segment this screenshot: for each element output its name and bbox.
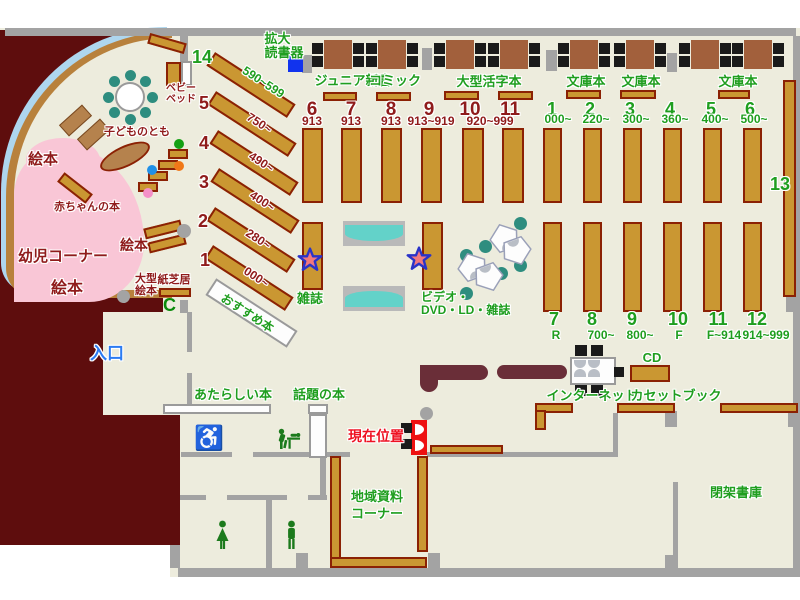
bookshelf xyxy=(462,128,484,203)
kids-round-table xyxy=(115,82,145,112)
study-table xyxy=(570,40,598,69)
bookshelf xyxy=(535,410,546,430)
chair xyxy=(732,43,743,54)
shelf-no-14: 14 xyxy=(192,47,212,67)
wall xyxy=(788,411,800,427)
pillar xyxy=(546,50,557,71)
label-ehon-3: 絵本 xyxy=(51,280,83,298)
shelf-range-400: 400~ xyxy=(701,113,728,126)
outside-floor xyxy=(0,545,170,600)
shelf-range-920-999: 920~999 xyxy=(466,115,513,128)
wall xyxy=(673,482,678,563)
reading-bench-seat xyxy=(345,225,403,241)
label-kodomo: 子どものとも xyxy=(104,126,170,138)
label-cd: CD xyxy=(643,351,662,366)
bookshelf xyxy=(330,456,341,568)
chair xyxy=(614,43,625,54)
kids-stool xyxy=(174,161,184,171)
bookshelf xyxy=(430,445,503,454)
label-wadai: 話題の本 xyxy=(293,388,345,403)
shelf-range-914-999: 914~999 xyxy=(742,329,789,342)
wall xyxy=(296,553,308,568)
chair-dot xyxy=(140,76,151,87)
wall xyxy=(665,411,677,427)
shelf-range-r: R xyxy=(552,329,561,342)
chair xyxy=(614,367,624,377)
shelf-no-b7: 7 xyxy=(549,309,559,329)
label-heika: 閉架書庫 xyxy=(710,486,762,501)
chair xyxy=(475,43,486,54)
wall xyxy=(786,296,798,312)
chair xyxy=(575,345,587,356)
chair xyxy=(434,56,445,67)
shelf-no-b10: 10 xyxy=(668,309,688,329)
label-ehon-2: 絵本 xyxy=(120,238,148,254)
chair xyxy=(558,43,569,54)
pillar xyxy=(180,300,188,313)
bookshelf xyxy=(703,222,722,312)
kids-stool xyxy=(143,188,153,198)
chair xyxy=(407,56,418,67)
chair xyxy=(679,43,690,54)
bookshelf xyxy=(302,128,323,203)
wall xyxy=(560,452,613,457)
chair xyxy=(434,43,445,54)
bookshelf xyxy=(341,128,362,203)
chair xyxy=(773,56,784,67)
chair-dot xyxy=(103,92,114,103)
chair xyxy=(488,43,499,54)
chair xyxy=(353,56,364,67)
bookshelf xyxy=(663,128,682,203)
bookshelf xyxy=(630,365,670,382)
chair xyxy=(655,43,666,54)
chair xyxy=(732,56,743,67)
display-shelf xyxy=(163,404,271,414)
bookshelf xyxy=(663,222,682,312)
shelf-no-l3: 3 xyxy=(199,172,209,192)
shelf-range-220: 220~ xyxy=(582,113,609,126)
bookshelf xyxy=(381,128,402,203)
wall xyxy=(320,457,326,498)
bookshelf xyxy=(623,128,642,203)
chair xyxy=(529,56,540,67)
label-entrance: 入口 xyxy=(90,344,124,363)
wall xyxy=(428,553,440,570)
wall xyxy=(170,545,180,568)
reading-bench xyxy=(343,286,405,311)
chair xyxy=(773,43,784,54)
shelf-no-l5: 5 xyxy=(199,93,209,113)
library-floor-map: ♿C拡大 読書器ジュニア新書コミック大型活字本文庫本文庫本文庫本67891011… xyxy=(0,0,800,600)
reading-bench-seat xyxy=(345,291,403,307)
bookshelf xyxy=(703,128,722,203)
magnifier-reader-side xyxy=(303,55,312,73)
chair xyxy=(655,56,666,67)
shelf-range-913b: 913 xyxy=(341,115,361,128)
shelf-no-b9: 9 xyxy=(627,309,637,329)
display-shelf xyxy=(308,404,328,414)
man-icon xyxy=(284,520,299,555)
star-icon xyxy=(297,247,323,273)
label-baby-bed: ベビー ベッド xyxy=(166,84,196,105)
shelf-range-913a: 913 xyxy=(302,115,322,128)
label-bunkobon-1: 文庫本 xyxy=(566,75,605,90)
wall xyxy=(266,500,272,568)
chair xyxy=(679,56,690,67)
pillar-dot xyxy=(420,407,433,420)
bookshelf xyxy=(502,128,524,203)
shelf-range-700: 700~ xyxy=(587,329,614,342)
chair xyxy=(488,56,499,67)
label-akachan: 赤ちゃんの本 xyxy=(54,201,120,213)
shelf-no-13: 13 xyxy=(770,174,790,194)
wall xyxy=(187,312,192,352)
chair xyxy=(599,56,610,67)
chair xyxy=(366,43,377,54)
label-bunkobon-2: 文庫本 xyxy=(621,75,660,90)
chair xyxy=(720,56,731,67)
reading-bench xyxy=(343,221,405,246)
outside-area xyxy=(0,312,103,418)
pillar xyxy=(422,48,432,70)
label-chiiki: 地域資料 コーナー xyxy=(351,489,403,523)
label-cassette: カセットブック xyxy=(630,389,721,404)
chair xyxy=(312,43,323,54)
label-ogata-ehon: 大型 絵本 xyxy=(135,274,157,297)
study-table xyxy=(691,40,719,69)
shelf-range-800: 800~ xyxy=(626,329,653,342)
woman-icon xyxy=(215,520,230,555)
bookshelf xyxy=(543,222,562,312)
shelf-range-300: 300~ xyxy=(622,113,649,126)
bookshelf xyxy=(583,222,602,312)
bookshelf xyxy=(743,222,762,312)
bookshelf xyxy=(168,149,188,159)
shelf-range-f: F xyxy=(675,329,682,342)
label-ehon-1: 絵本 xyxy=(28,152,58,169)
label-yoji-corner: 幼児コーナー xyxy=(18,249,108,266)
monitor xyxy=(574,369,586,377)
label-comic: コミック xyxy=(369,74,421,89)
pillar xyxy=(667,53,677,72)
chair xyxy=(529,43,540,54)
study-table xyxy=(446,40,474,69)
bookshelf xyxy=(720,403,798,413)
study-table xyxy=(500,40,528,69)
baby-changing-icon xyxy=(276,427,302,455)
bookshelf xyxy=(543,128,562,203)
shelf-range-f914: F~914 xyxy=(707,329,741,342)
bookshelf xyxy=(566,90,601,99)
shelf-range-913-919: 913~919 xyxy=(407,115,454,128)
chair-dot xyxy=(125,114,136,125)
phone-icon: C xyxy=(163,295,176,316)
label-video: ビデオ・ DVD・LD・雑誌 xyxy=(421,291,510,318)
label-kamishibai: 紙芝居 xyxy=(158,274,191,286)
shelf-no-l4: 4 xyxy=(199,133,209,153)
chair xyxy=(366,56,377,67)
couch xyxy=(497,365,567,379)
wall xyxy=(178,568,800,577)
chair xyxy=(475,56,486,67)
label-current-position: 現在位置 xyxy=(348,429,404,445)
star-icon xyxy=(406,246,432,272)
wall xyxy=(227,495,287,500)
study-table xyxy=(626,40,654,69)
shelf-range-000: 000~ xyxy=(544,113,571,126)
bookshelf xyxy=(583,128,602,203)
pillar-dot xyxy=(117,290,130,303)
label-atarashii: あたらしい本 xyxy=(194,388,272,403)
bookshelf xyxy=(417,456,428,552)
bookshelf xyxy=(623,222,642,312)
kids-stool xyxy=(147,165,157,175)
chair xyxy=(720,43,731,54)
pillar-dot xyxy=(177,224,191,238)
wall xyxy=(665,555,678,568)
bookshelf xyxy=(718,90,750,99)
bookshelf xyxy=(620,90,656,99)
display-shelf xyxy=(309,414,327,458)
chair xyxy=(558,56,569,67)
chair xyxy=(353,43,364,54)
chair xyxy=(599,43,610,54)
chair-dot xyxy=(125,70,136,81)
shelf-no-l1: 1 xyxy=(200,250,210,270)
label-kakudai-dokushoki: 拡大 読書器 xyxy=(264,32,303,59)
bookshelf xyxy=(743,128,762,203)
study-table xyxy=(744,40,772,69)
shelf-range-500: 500~ xyxy=(740,113,767,126)
study-table xyxy=(324,40,352,69)
wheelchair-icon: ♿ xyxy=(194,424,224,453)
monitor xyxy=(588,369,600,377)
shelf-range-360: 360~ xyxy=(661,113,688,126)
label-ogata-katsuji: 大型活字本 xyxy=(456,75,521,90)
label-zasshi: 雑誌 xyxy=(297,292,323,307)
shelf-no-l2: 2 xyxy=(198,211,208,231)
shelf-no-b11: 11 xyxy=(708,309,727,329)
kids-stool xyxy=(174,139,184,149)
study-table xyxy=(378,40,406,69)
wall xyxy=(187,373,192,404)
shelf-range-913c: 913 xyxy=(381,115,401,128)
wall xyxy=(5,28,796,36)
bookshelf xyxy=(330,557,427,568)
chair-dot xyxy=(109,76,120,87)
outside-area xyxy=(0,415,180,546)
shelf-no-b12: 12 xyxy=(747,309,767,329)
chair-dot xyxy=(147,92,158,103)
shelf-no-b8: 8 xyxy=(587,309,597,329)
bookshelf xyxy=(421,128,442,203)
chair xyxy=(614,56,625,67)
chair-dot xyxy=(109,107,120,118)
label-bunkobon-3: 文庫本 xyxy=(718,75,757,90)
chair xyxy=(407,43,418,54)
couch xyxy=(420,365,488,380)
label-internet: インターネット xyxy=(546,389,637,404)
bookshelf xyxy=(617,403,675,413)
wall xyxy=(613,413,618,457)
wall xyxy=(180,495,206,500)
chair xyxy=(591,345,603,356)
chair xyxy=(312,56,323,67)
